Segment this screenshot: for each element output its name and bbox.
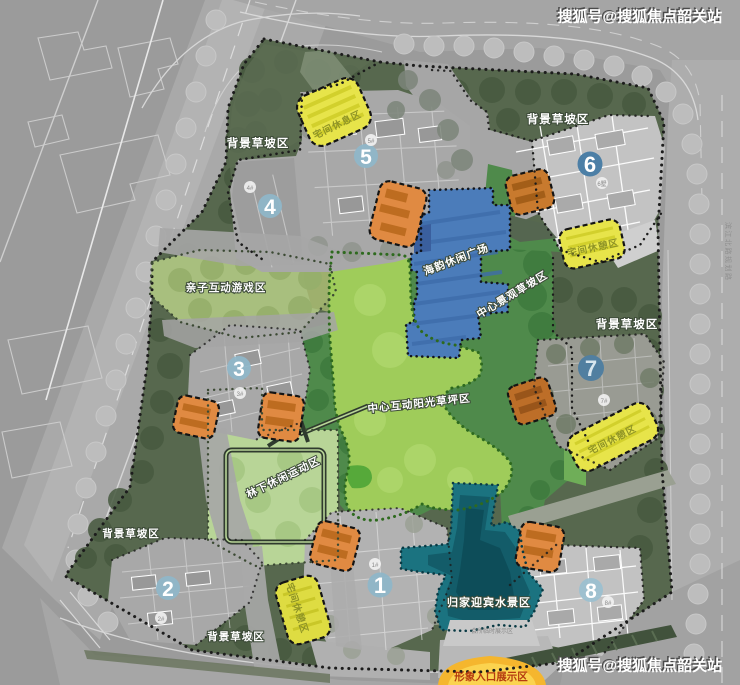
svg-text:亲子互动游戏区: 亲子互动游戏区 <box>186 281 267 294</box>
svg-text:6墅: 6墅 <box>597 180 606 188</box>
svg-text:形象入口展示区: 形象入口展示区 <box>454 670 528 683</box>
svg-text:背景草坡区: 背景草坡区 <box>596 317 659 331</box>
svg-text:3: 3 <box>233 358 245 381</box>
svg-text:搜狐号@搜狐焦点韶关站: 搜狐号@搜狐焦点韶关站 <box>558 8 723 26</box>
svg-text:2: 2 <box>162 578 174 601</box>
svg-text:5#: 5# <box>368 139 375 145</box>
svg-text:搜狐号@搜狐焦点韶关站: 搜狐号@搜狐焦点韶关站 <box>558 657 723 675</box>
svg-text:1: 1 <box>374 573 386 598</box>
svg-text:8: 8 <box>585 580 597 603</box>
svg-text:1#: 1# <box>372 563 379 569</box>
svg-text:8#: 8# <box>605 601 612 607</box>
svg-text:背景草坡区: 背景草坡区 <box>207 630 265 643</box>
svg-text:7: 7 <box>585 356 597 381</box>
svg-text:背景草坡区: 背景草坡区 <box>227 136 290 150</box>
svg-text:7#: 7# <box>601 399 608 405</box>
svg-text:5: 5 <box>360 146 372 169</box>
svg-text:归家迎宾水景区: 归家迎宾水景区 <box>447 595 531 609</box>
svg-text:会所临时展示区: 会所临时展示区 <box>471 627 513 635</box>
svg-text:背景草坡区: 背景草坡区 <box>527 112 590 126</box>
svg-text:背景草坡区: 背景草坡区 <box>102 527 160 540</box>
svg-text:滨江北路规划路: 滨江北路规划路 <box>724 222 733 282</box>
svg-text:4#: 4# <box>247 186 254 192</box>
svg-text:6: 6 <box>584 152 596 177</box>
svg-text:4: 4 <box>264 196 276 219</box>
svg-text:2#: 2# <box>158 617 165 623</box>
svg-text:3#: 3# <box>237 392 244 398</box>
